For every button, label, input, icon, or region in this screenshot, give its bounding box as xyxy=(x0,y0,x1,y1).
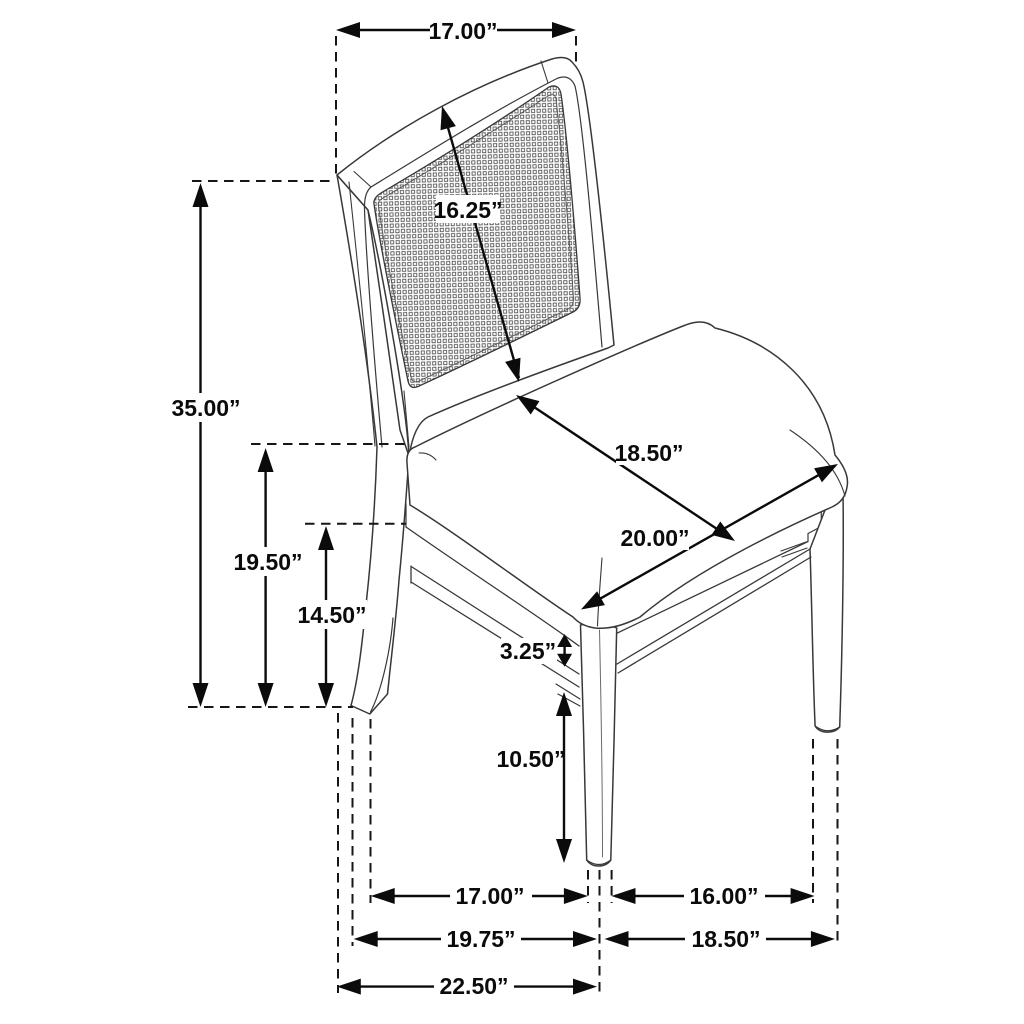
svg-text:10.50”: 10.50” xyxy=(496,746,565,772)
svg-text:17.00”: 17.00” xyxy=(455,883,524,909)
svg-text:20.00”: 20.00” xyxy=(620,525,689,551)
svg-text:14.50”: 14.50” xyxy=(297,602,366,628)
svg-text:22.50”: 22.50” xyxy=(439,973,508,999)
svg-text:18.50”: 18.50” xyxy=(614,440,683,466)
svg-text:19.75”: 19.75” xyxy=(446,926,515,952)
svg-text:35.00”: 35.00” xyxy=(171,395,240,421)
svg-text:16.25”: 16.25” xyxy=(433,197,502,223)
svg-text:3.25”: 3.25” xyxy=(500,638,556,664)
svg-text:17.00”: 17.00” xyxy=(428,18,497,44)
svg-text:18.50”: 18.50” xyxy=(691,926,760,952)
svg-text:19.50”: 19.50” xyxy=(233,549,302,575)
svg-text:16.00”: 16.00” xyxy=(689,883,758,909)
